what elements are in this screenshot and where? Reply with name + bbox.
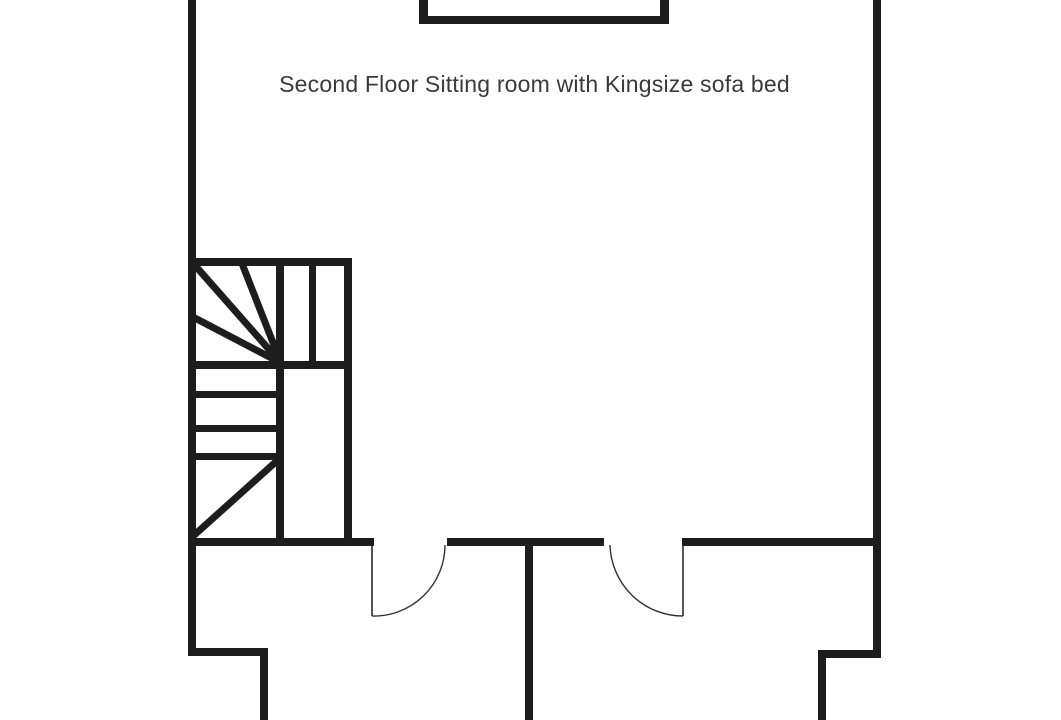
hall-wall-right-segment xyxy=(682,538,881,546)
stair-right-edge xyxy=(344,258,352,546)
stair-center-divider xyxy=(276,258,284,546)
hall-wall-left-segment xyxy=(188,538,374,546)
floorplan-canvas xyxy=(0,0,1061,720)
left-exterior-wall xyxy=(188,0,196,656)
chimney-bottom-wall xyxy=(419,16,669,24)
stair-upper-riser xyxy=(309,258,316,364)
stair-top-edge xyxy=(188,258,352,266)
room-partition-wall xyxy=(525,538,533,720)
lower-right-step-wall xyxy=(818,650,881,658)
winder-tread-4 xyxy=(191,459,279,538)
wall-layer xyxy=(188,0,881,720)
stair-tread-3 xyxy=(188,453,283,460)
right-door-swing-arc xyxy=(610,545,683,616)
lower-left-step-wall xyxy=(188,648,268,656)
left-door-swing-arc xyxy=(372,545,445,616)
right-exterior-wall xyxy=(873,0,881,658)
stair-tread-1 xyxy=(188,391,283,398)
stair-tread-2 xyxy=(188,425,283,432)
lower-left-return-wall xyxy=(260,648,268,720)
stair-mid-landing-edge xyxy=(188,361,352,369)
stair-winder-layer xyxy=(191,261,281,538)
floorplan-page: Second Floor Sitting room with Kingsize … xyxy=(0,0,1061,720)
winder-tread-1 xyxy=(192,262,281,363)
lower-right-return-wall xyxy=(818,650,826,720)
